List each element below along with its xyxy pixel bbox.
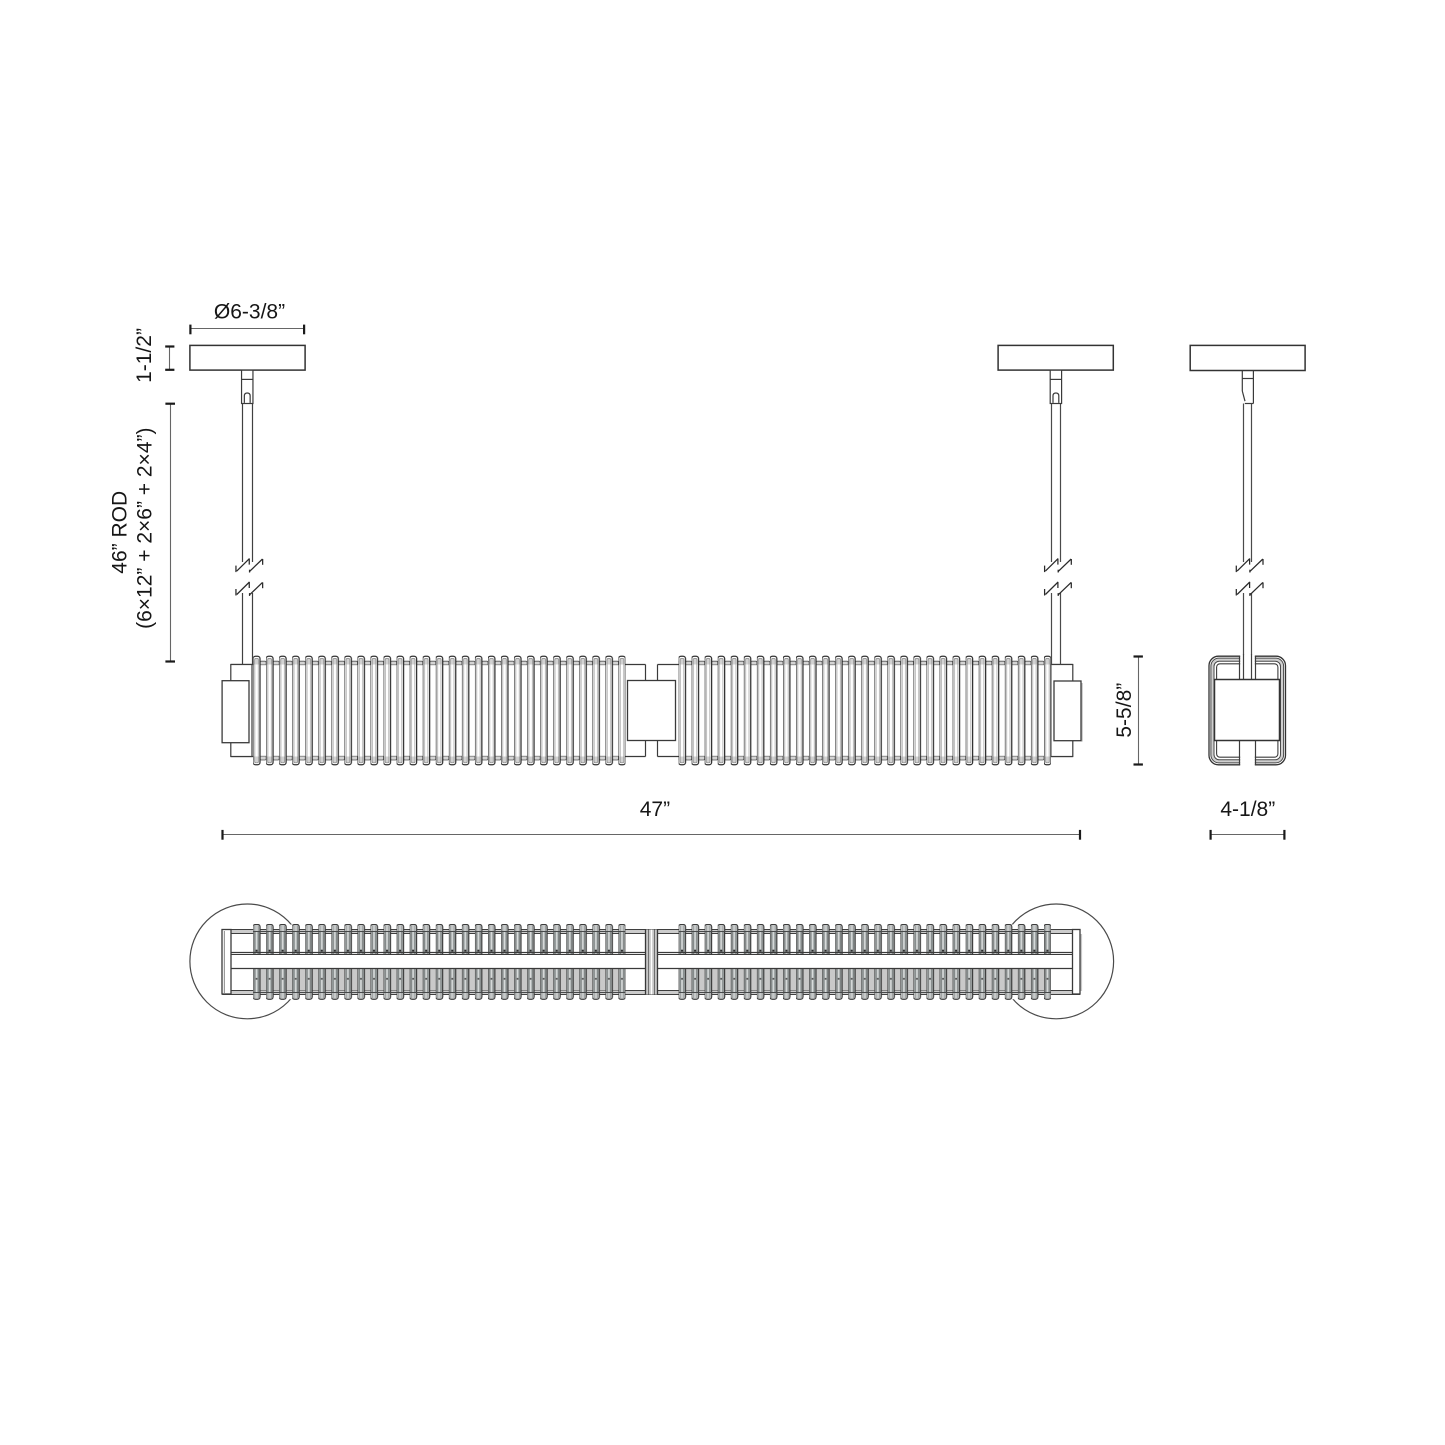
- svg-text:(6×12” + 2×6” + 2×4”): (6×12” + 2×6” + 2×4”): [133, 428, 156, 629]
- svg-text:47”: 47”: [640, 798, 670, 821]
- svg-text:4-1/8”: 4-1/8”: [1220, 798, 1275, 821]
- svg-text:5-5/8”: 5-5/8”: [1113, 683, 1136, 738]
- svg-text:Ø6-3/8”: Ø6-3/8”: [214, 300, 285, 323]
- svg-text:46” ROD: 46” ROD: [109, 491, 132, 574]
- svg-text:1-1/2”: 1-1/2”: [133, 328, 156, 383]
